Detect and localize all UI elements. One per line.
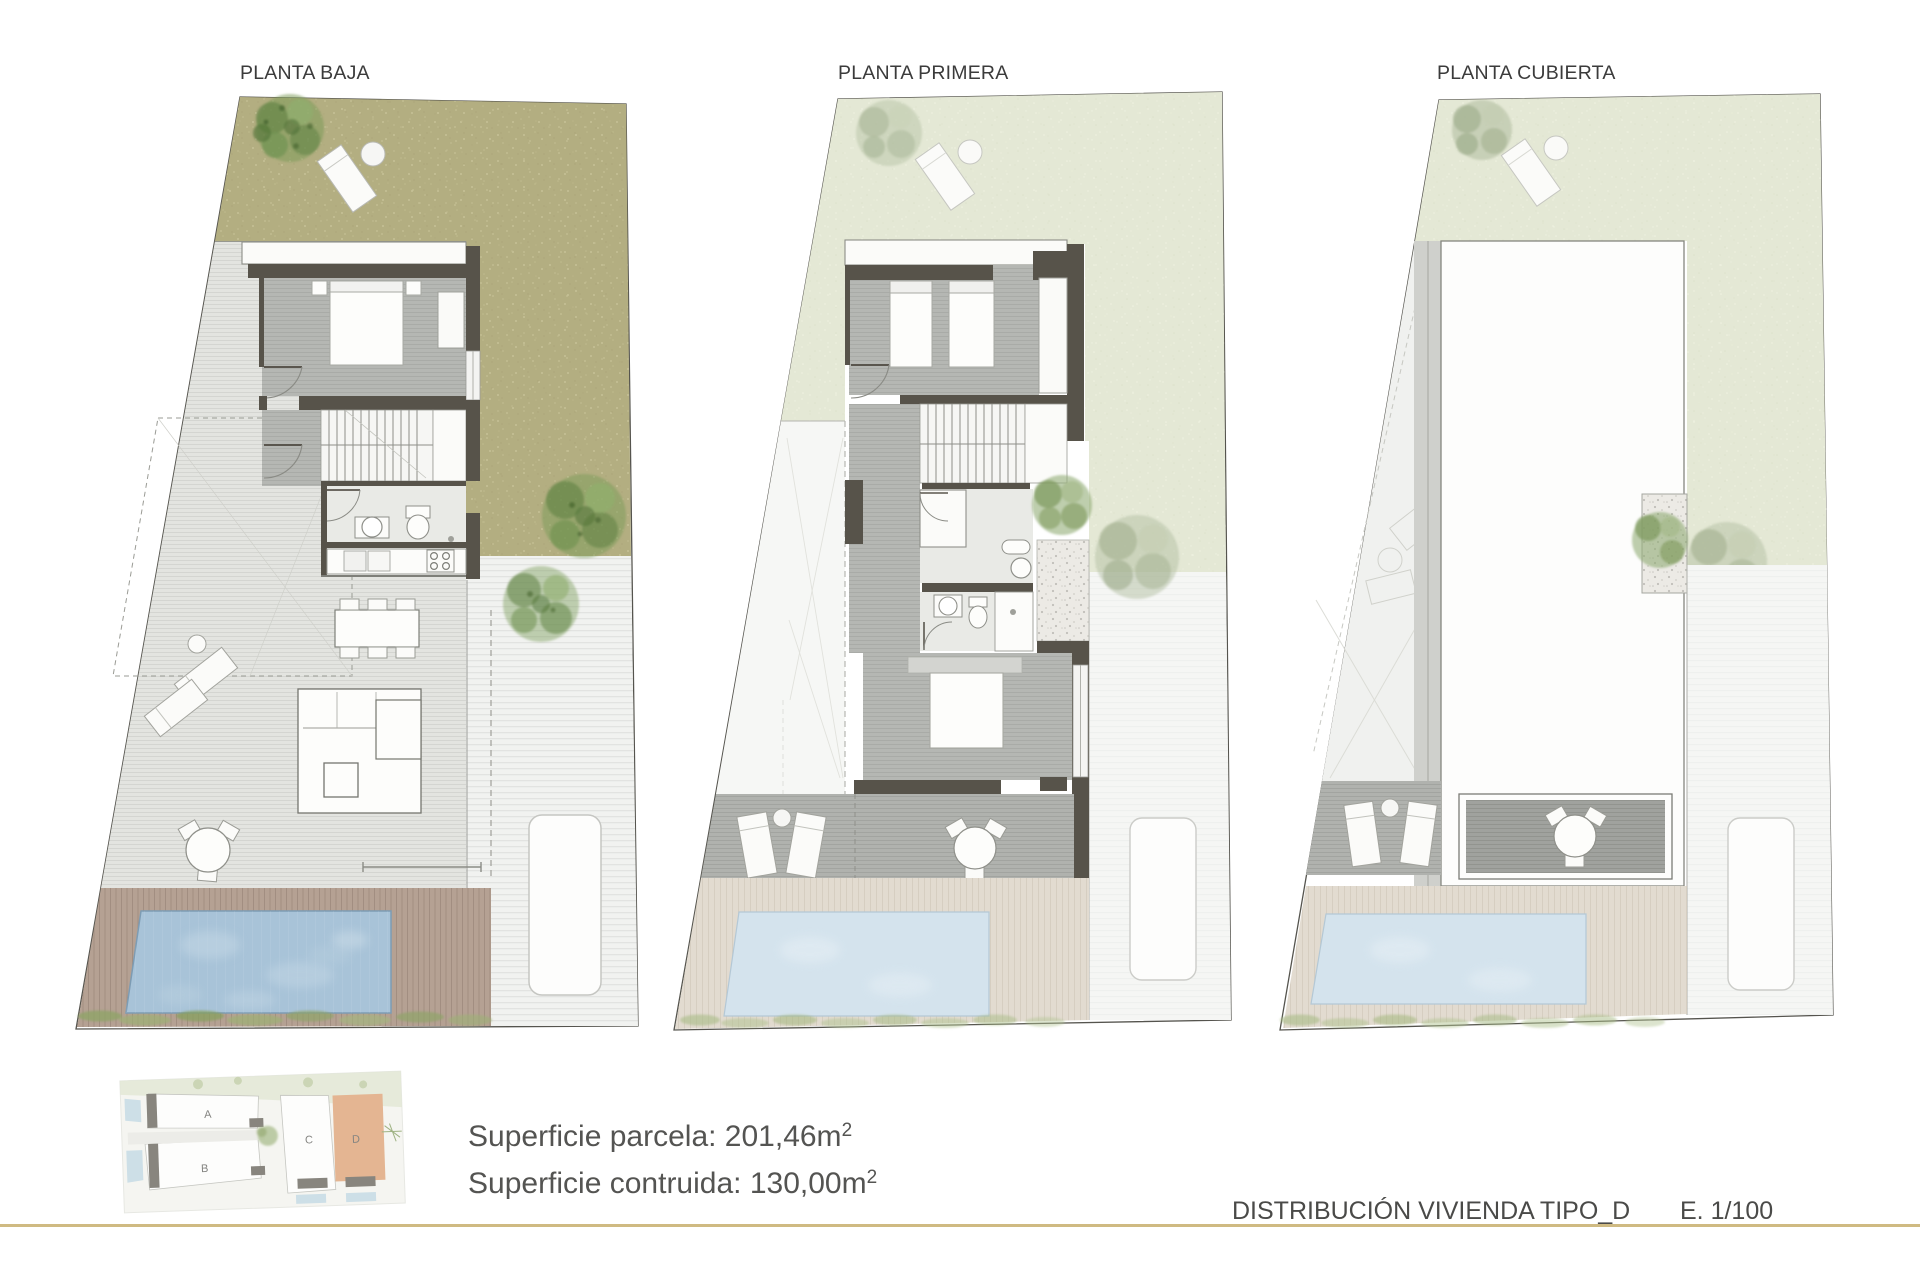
- svg-text:B: B: [201, 1163, 209, 1175]
- svg-text:C: C: [305, 1134, 313, 1146]
- svg-text:Superficie contruida: 130,00m2: Superficie contruida: 130,00m2: [468, 1167, 877, 1200]
- svg-text:PLANTA BAJA: PLANTA BAJA: [240, 62, 370, 84]
- svg-text:Superficie parcela: 201,46m2: Superficie parcela: 201,46m2: [468, 1120, 852, 1153]
- svg-text:PLANTA CUBIERTA: PLANTA CUBIERTA: [1437, 62, 1616, 84]
- svg-text:A: A: [204, 1109, 212, 1121]
- svg-text:E. 1/100: E. 1/100: [1680, 1197, 1773, 1225]
- svg-text:DISTRIBUCIÓN VIVIENDA TIPO_D: DISTRIBUCIÓN VIVIENDA TIPO_D: [1232, 1196, 1630, 1225]
- svg-text:PLANTA PRIMERA: PLANTA PRIMERA: [838, 62, 1008, 84]
- svg-text:D: D: [352, 1134, 360, 1146]
